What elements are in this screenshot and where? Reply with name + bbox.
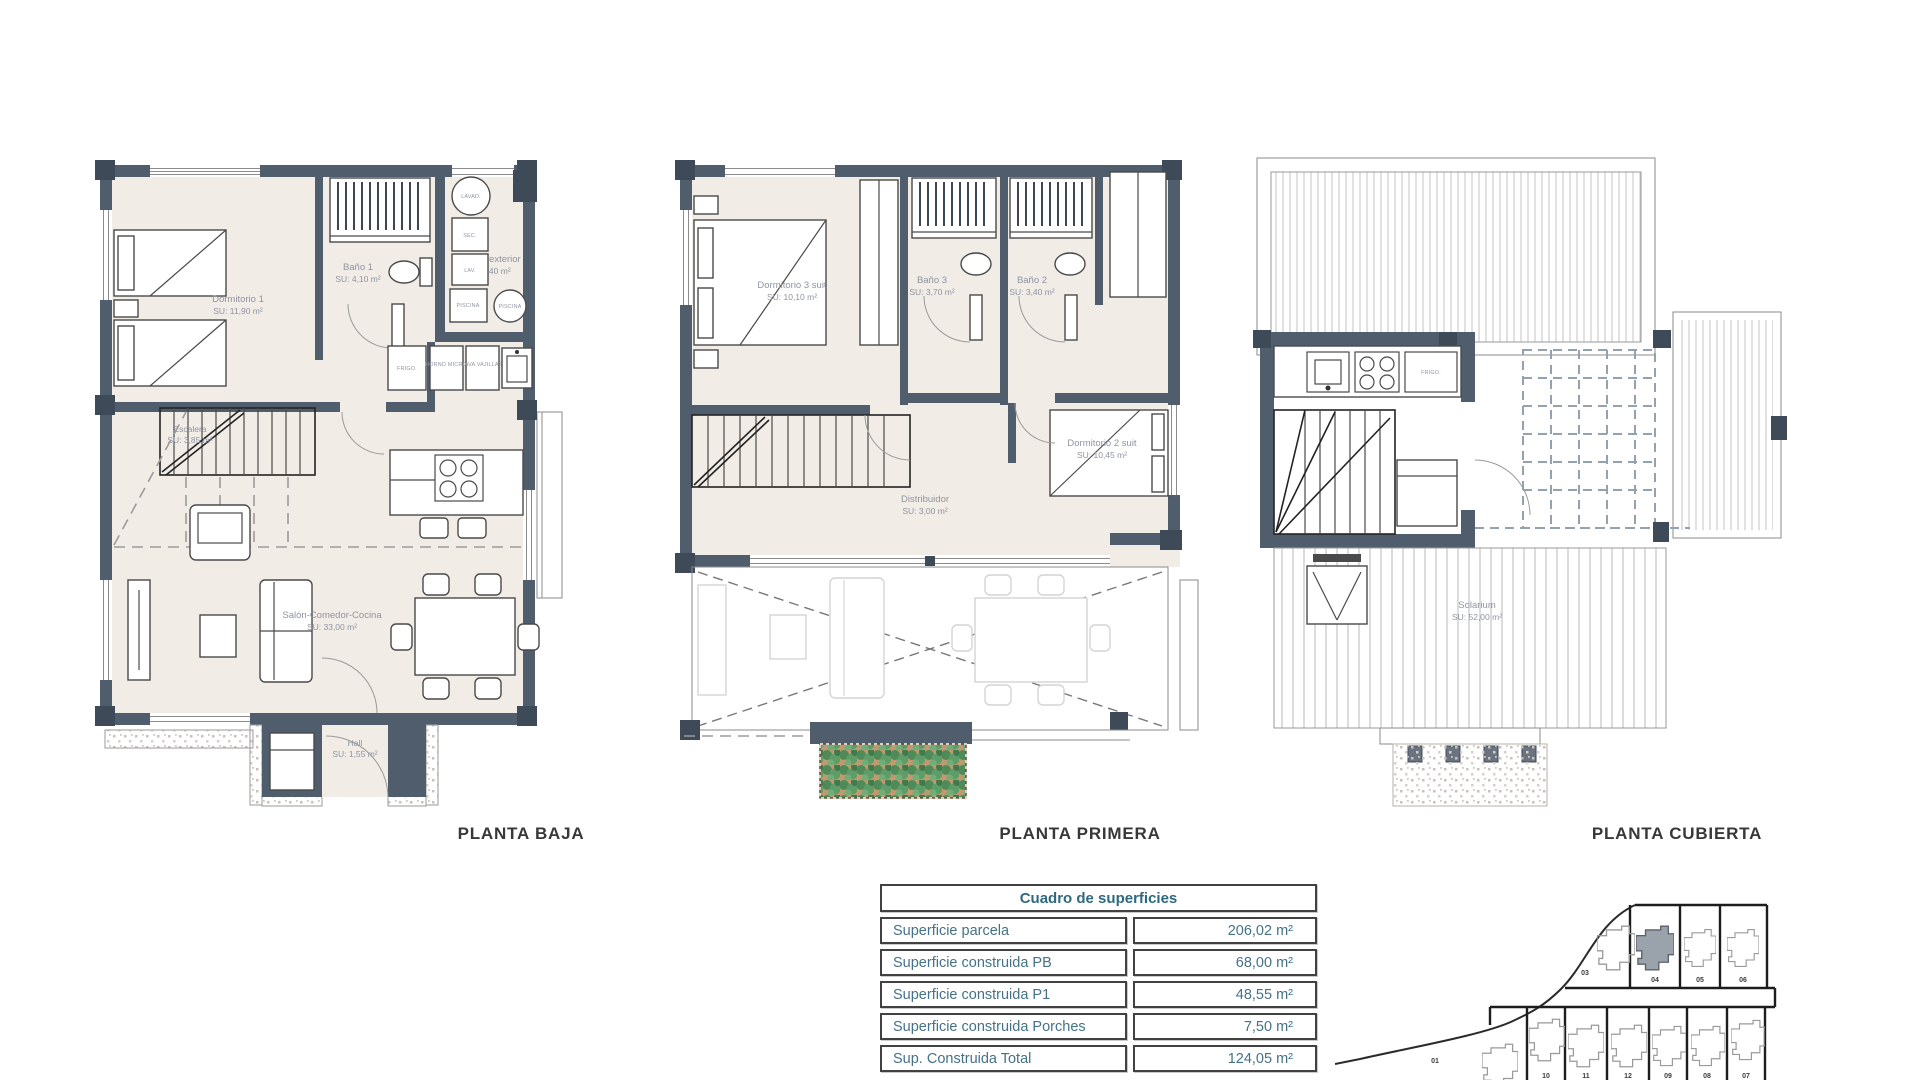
washer-galeria: LAVAD. — [452, 177, 490, 215]
table-row: Superficie construida PB 68,00 m² — [880, 949, 1317, 976]
svg-text:PISCINA: PISCINA — [457, 303, 480, 309]
surfaces-table: Cuadro de superficies Superficie parcela… — [880, 884, 1317, 1072]
room-label-salon: Salón-Comedor-Cocina — [282, 610, 382, 621]
house-outline-plot06 — [1727, 930, 1759, 967]
sofa — [260, 580, 312, 682]
sliding-door-terrace — [750, 555, 1110, 567]
table-row: Superficie parcela 206,02 m² — [880, 917, 1317, 944]
pool-equipment-tank: PISCINA — [494, 290, 526, 322]
plot-borders-bottom — [1490, 1007, 1765, 1080]
house-outline-plot08 — [1691, 1026, 1725, 1065]
entry-closet — [262, 725, 322, 797]
svg-text:LAV.: LAV. — [464, 268, 476, 274]
side-terrace-outline — [537, 412, 562, 598]
tv-unit — [128, 580, 150, 680]
room-area-hall: SU: 1,55 m² — [332, 749, 378, 759]
roof-upper — [1257, 158, 1655, 355]
nightstand-1 — [694, 196, 718, 214]
window-top-dorm1 — [150, 165, 260, 177]
bed-single-2 — [114, 320, 226, 386]
house-outline-plot12 — [1611, 1025, 1647, 1066]
surfaces-table-title: Cuadro de superficies — [1020, 890, 1178, 907]
table-row: Sup. Construida Total 124,05 m² — [880, 1045, 1317, 1072]
house-outline-plot07 — [1731, 1020, 1765, 1059]
summer-kitchen: FRIGO. — [1274, 346, 1461, 397]
room-label-dorm3: Dormitorio 3 suit — [757, 280, 827, 291]
plot-label-06: 06 — [1739, 977, 1747, 984]
side-table — [200, 615, 236, 657]
room-label-dorm2: Dormitorio 2 suit — [1067, 438, 1137, 449]
sink-bano2 — [1055, 253, 1085, 275]
room-area-solarium: SU: 52,00 m² — [1452, 612, 1502, 622]
room-label-bano1: Baño 1 — [343, 262, 373, 273]
title-planta-primera: PLANTA PRIMERA — [999, 824, 1160, 844]
window-top-galeria — [452, 165, 514, 177]
floorplan-planta-primera: Dormitorio 3 suit SU: 10,10 m² Baño 3 SU… — [670, 150, 1200, 810]
plot-label-09: 09 — [1664, 1073, 1672, 1080]
door-arc-core — [1475, 460, 1530, 515]
plan-sheet: Dormitorio 1 SU: 11,90 m² Baño 1 SU: 4,1… — [0, 0, 1920, 1080]
nightstand — [114, 300, 138, 317]
toilet-bano1 — [389, 258, 432, 286]
planter-lintel — [810, 722, 972, 744]
house-outline-plot09 — [1652, 1026, 1686, 1065]
row-value-porches: 7,50 m² — [1133, 1013, 1317, 1040]
oven-micro: HORNO MICRO — [425, 346, 467, 390]
site-location-plan: 03 04 05 06 01 10 11 12 09 08 07 — [1335, 895, 1800, 1080]
dishwasher: LAVA VAJILLAS — [462, 346, 503, 390]
row-label-total: Sup. Construida Total — [880, 1045, 1127, 1072]
row-value-total: 124,05 m² — [1133, 1045, 1317, 1072]
armchair — [190, 505, 250, 560]
galeria-corner-block — [513, 170, 537, 202]
fridge: FRIGO. — [388, 346, 426, 390]
wardrobe-dorm2 — [1110, 172, 1166, 297]
room-area-distribuidor: SU: 3,00 m² — [902, 506, 948, 516]
sliding-door-right-salon — [523, 490, 535, 580]
row-value-construida-pb: 68,00 m² — [1133, 949, 1317, 976]
window-left-salon — [100, 580, 112, 680]
house-outline-plot11 — [1568, 1025, 1604, 1066]
room-label-dormitorio1: Dormitorio 1 — [212, 294, 264, 305]
shower-bano1 — [330, 178, 430, 242]
room-area-bano2: SU: 3,40 m² — [1009, 287, 1055, 297]
row-label-porches: Superficie construida Porches — [880, 1013, 1127, 1040]
room-area-salon: SU: 33,00 m² — [307, 622, 357, 632]
kitchen-island — [390, 450, 523, 515]
room-area-bano1: SU: 4,10 m² — [335, 274, 381, 284]
table-row: Superficie construida P1 48,55 m² — [880, 981, 1317, 1008]
row-label-construida-pb: Superficie construida PB — [880, 949, 1127, 976]
site-boundary-curve — [1335, 905, 1635, 1064]
window-top-dorm3 — [725, 165, 835, 177]
plot-label-07: 07 — [1742, 1073, 1750, 1080]
plot-label-11: 11 — [1582, 1073, 1590, 1080]
shower-bano2 — [1010, 178, 1092, 238]
pool-equipment-box: PISCINA — [450, 289, 487, 322]
porch-pier — [388, 725, 426, 797]
kitchen-sink — [502, 348, 532, 388]
wardrobe-dorm3 — [860, 180, 898, 345]
plot-label-08: 08 — [1703, 1073, 1711, 1080]
row-label-parcela: Superficie parcela — [880, 917, 1127, 944]
floorplan-planta-baja: Dormitorio 1 SU: 11,90 m² Baño 1 SU: 4,1… — [90, 150, 570, 810]
shower-bano3 — [912, 178, 996, 238]
svg-text:FRIGO.: FRIGO. — [397, 366, 417, 372]
plot-label-12: 12 — [1624, 1073, 1632, 1080]
plot-label-03: 03 — [1581, 970, 1589, 977]
svg-text:FRIGO.: FRIGO. — [1421, 370, 1441, 376]
room-area-dorm3: SU: 10,10 m² — [767, 292, 817, 302]
title-planta-baja: PLANTA BAJA — [458, 824, 585, 844]
plot-label-01: 01 — [1431, 1058, 1439, 1065]
lower-deck — [1380, 728, 1547, 806]
table-row: Superficie construida Porches 7,50 m² — [880, 1013, 1317, 1040]
window-bottom-salon — [150, 713, 250, 725]
roof-right-wing — [1673, 312, 1787, 538]
row-value-parcela: 206,02 m² — [1133, 917, 1317, 944]
room-label-distribuidor: Distribuidor — [901, 494, 949, 505]
floorplan-planta-cubierta: FRIGO. Solarium SU: 52,00 m² — [1245, 150, 1790, 810]
title-planta-cubierta: PLANTA CUBIERTA — [1592, 824, 1762, 844]
room-label-bano3: Baño 3 — [917, 275, 947, 286]
dryer-galeria: SEC. — [452, 218, 488, 251]
bed-single-1 — [114, 230, 226, 296]
svg-text:LAVAD.: LAVAD. — [461, 194, 481, 200]
row-value-construida-p1: 48,55 m² — [1133, 981, 1317, 1008]
svg-text:LAVA VAJILLAS: LAVA VAJILLAS — [462, 362, 503, 368]
room-label-bano2: Baño 2 — [1017, 275, 1047, 286]
window-right-dorm2 — [1168, 405, 1180, 495]
house-highlighted-plot04 — [1636, 926, 1674, 970]
sink-bano3 — [961, 253, 991, 275]
svg-text:PISCINA: PISCINA — [499, 304, 522, 310]
solarium-pillar — [1653, 522, 1669, 542]
room-area-escalera: SU: 3,85 m² — [167, 435, 213, 445]
plot-label-04: 04 — [1651, 977, 1659, 984]
surfaces-table-header: Cuadro de superficies — [880, 884, 1317, 912]
planter — [820, 744, 966, 798]
nightstand-2 — [694, 350, 718, 368]
plot-label-05: 05 — [1696, 977, 1704, 984]
row-label-construida-p1: Superficie construida P1 — [880, 981, 1127, 1008]
pergola-grid — [1475, 350, 1690, 528]
window-left-dorm3 — [680, 210, 692, 305]
room-label-solarium: Solarium — [1458, 600, 1496, 611]
room-area-dorm2: SU: 10,45 m² — [1077, 450, 1127, 460]
house-outline-plot10 — [1529, 1019, 1565, 1060]
room-area-bano3: SU: 3,70 m² — [909, 287, 955, 297]
window-left-dorm1 — [100, 210, 112, 300]
house-outline-plot05 — [1684, 930, 1716, 967]
house-outline-plot01 — [1482, 1044, 1518, 1080]
svg-text:SEC.: SEC. — [463, 233, 476, 239]
sink-unit-galeria: LAV. — [452, 254, 488, 285]
room-area-dormitorio1: SU: 11,90 m² — [213, 306, 263, 316]
plot-label-10: 10 — [1542, 1073, 1550, 1080]
